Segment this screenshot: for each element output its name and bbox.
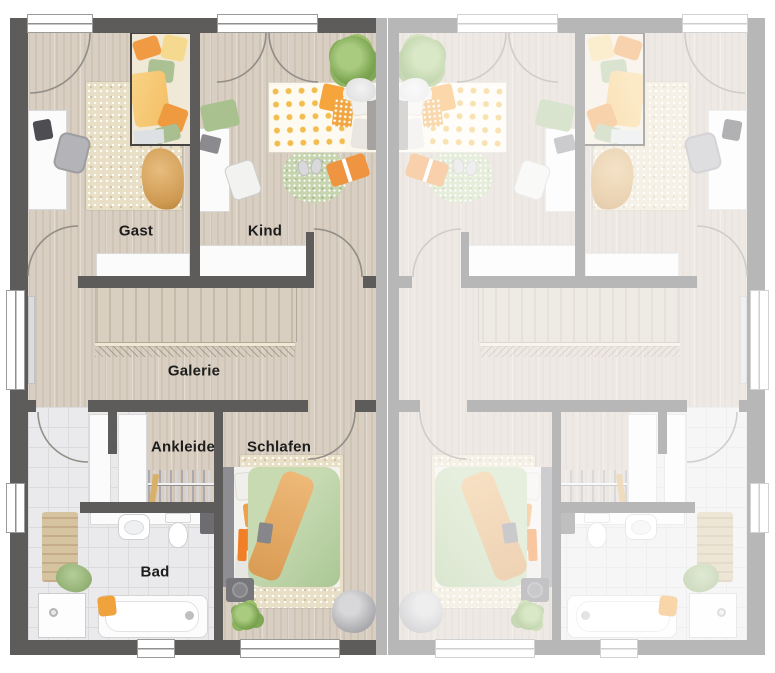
- casement-arc-kind-left: [217, 33, 266, 82]
- room-label-galerie: Galerie: [168, 363, 220, 380]
- unit-left-floorplan: Gast Kind Galerie Ankleide Schlafen Bad: [10, 18, 387, 655]
- unit-right-floorplan: Gast Kind Galerie Ankleide Schlafen Bad: [388, 18, 765, 655]
- casement-arc-kind-right: [457, 33, 506, 82]
- casement-arc-gast-window: [30, 33, 90, 93]
- door-arc-gast: [697, 226, 747, 276]
- room-label-gast: Gast: [119, 223, 153, 240]
- door-arc-kind: [314, 229, 362, 277]
- casement-arc-kind-left: [509, 33, 558, 82]
- room-label-schlafen: Schlafen: [247, 439, 311, 456]
- door-arc-gast: [28, 226, 78, 276]
- door-swing-arcs: [10, 18, 387, 655]
- casement-arc-gast-window: [685, 33, 745, 93]
- door-arc-bad: [687, 412, 737, 462]
- room-label-kind: Kind: [248, 223, 282, 240]
- door-arc-schlafen: [308, 412, 355, 459]
- casement-arc-kind-right: [269, 33, 318, 82]
- door-arc-bad: [38, 412, 88, 462]
- room-label-ankleide: Ankleide: [151, 439, 215, 456]
- door-arc-kind: [413, 229, 461, 277]
- room-label-bad: Bad: [141, 564, 170, 581]
- floorplan-canvas: Gast Kind Galerie Ankleide Schlafen Bad: [0, 0, 775, 673]
- door-swing-arcs: [388, 18, 765, 655]
- door-arc-schlafen: [420, 412, 467, 459]
